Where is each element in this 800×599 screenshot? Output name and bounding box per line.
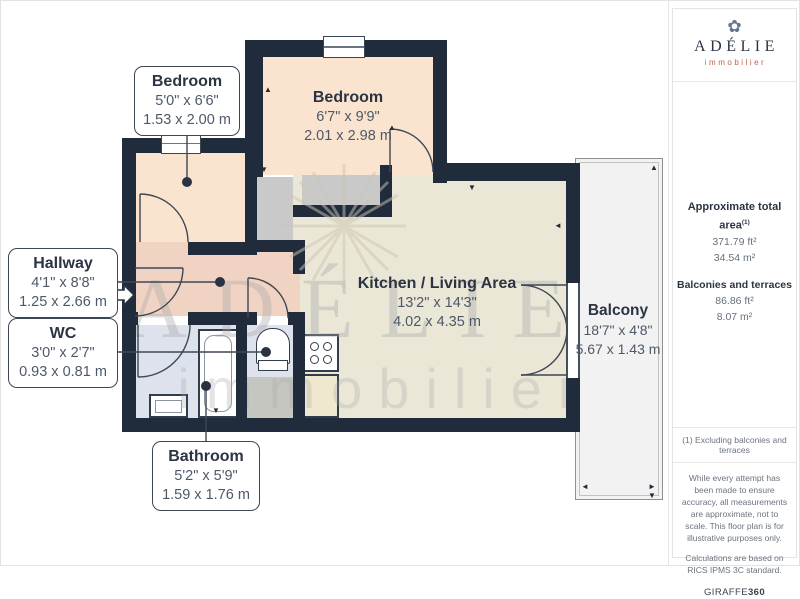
door-arc [140, 194, 188, 242]
room-name: Hallway [11, 254, 115, 274]
room-name: WC [11, 324, 115, 344]
total-area-m: 34.54 m² [673, 250, 796, 266]
giraffe360-logo: GIRAFFE360 [680, 586, 789, 599]
floorplan: ADÉLIE immobilier [0, 0, 668, 566]
balconies-m: 8.07 m² [673, 309, 796, 325]
room-dims-imperial: 5'2" x 5'9" [155, 467, 257, 486]
agency-tagline: immobilier [673, 58, 796, 67]
room-dims-imperial: 13'2" x 14'3" [347, 294, 527, 313]
measure-tick: ► [648, 483, 656, 491]
bedroom-1-label: Bedroom 5'0" x 6'6" 1.53 x 2.00 m [134, 66, 240, 136]
door-arc [135, 268, 183, 316]
brand-name: GIRAFFE [704, 587, 748, 598]
door-arc [138, 325, 190, 377]
disclaimer: While every attempt has been made to ens… [673, 462, 796, 599]
room-dims-metric: 1.53 x 2.00 m [137, 111, 237, 130]
kitchen-living-label: Kitchen / Living Area 13'2" x 14'3" 4.02… [347, 274, 527, 332]
snowflake-icon: ✿ [673, 18, 796, 35]
room-dims-metric: 1.59 x 1.76 m [155, 486, 257, 505]
room-name: Bedroom [137, 72, 237, 92]
room-name: Bathroom [155, 447, 257, 467]
room-dims-imperial: 4'1" x 8'8" [11, 274, 115, 293]
room-dims-imperial: 3'0" x 2'7" [11, 344, 115, 363]
door-arc [521, 285, 567, 331]
wc-label: WC 3'0" x 2'7" 0.93 x 0.81 m [8, 318, 118, 388]
room-dims-metric: 2.01 x 2.98 m [268, 127, 428, 146]
door-arc [248, 278, 288, 318]
brand-suffix: 360 [748, 587, 765, 598]
measure-tick: ▼ [260, 166, 268, 174]
measure-tick: ▼ [648, 492, 656, 500]
room-dims-metric: 4.02 x 4.35 m [347, 313, 527, 332]
bathroom-label: Bathroom 5'2" x 5'9" 1.59 x 1.76 m [152, 441, 260, 511]
total-area-ft: 371.79 ft² [673, 234, 796, 250]
leader-dot [182, 177, 192, 187]
sidebar-panel: ✿ ADÉLIE immobilier Approximate total ar… [672, 8, 797, 558]
area-footnote: (1) Excluding balconies and terraces [673, 427, 796, 462]
total-area-label: Approximate total area [688, 201, 782, 232]
area-summary: Approximate total area(1) 371.79 ft² 34.… [673, 82, 796, 427]
measure-tick: ▼ [212, 407, 220, 415]
agency-name: ADÉLIE [673, 38, 796, 56]
balconies-ft: 86.86 ft² [673, 293, 796, 309]
measure-tick: ▲ [650, 164, 658, 172]
room-dims-imperial: 18'7" x 4'8" [568, 321, 668, 340]
room-dims-imperial: 5'0" x 6'6" [137, 92, 237, 111]
measure-tick: ◄ [581, 483, 589, 491]
agency-logo: ✿ ADÉLIE immobilier [673, 9, 796, 82]
leader-dot [261, 347, 271, 357]
room-dims-metric: 0.93 x 0.81 m [11, 363, 115, 382]
total-area-heading: Approximate total area(1) [673, 200, 796, 234]
room-dims-metric: 1.25 x 2.66 m [11, 293, 115, 312]
disclaimer-text-2: Calculations are based on RICS IPMS 3C s… [680, 552, 789, 576]
room-dims-imperial: 6'7" x 9'9" [268, 108, 428, 127]
balcony-label: Balcony 18'7" x 4'8" 5.67 x 1.43 m [568, 301, 668, 359]
bedroom-2-label: Bedroom 6'7" x 9'9" 2.01 x 2.98 m [268, 88, 428, 146]
sidebar-divider [668, 0, 669, 566]
room-name: Kitchen / Living Area [347, 274, 527, 294]
door-arc [521, 329, 567, 375]
footnote-ref: (1) [742, 219, 750, 226]
floorplan-page: { "plan": { "rooms": { "bedroom1": { "na… [0, 0, 800, 566]
measure-tick: ◄ [554, 222, 562, 230]
leader-dot [201, 381, 211, 391]
measure-tick: ◄ [126, 377, 134, 385]
leader-dot [215, 277, 225, 287]
measure-tick: ▼ [468, 184, 476, 192]
room-name: Balcony [568, 301, 668, 321]
hallway-label: Hallway 4'1" x 8'8" 1.25 x 2.66 m [8, 248, 118, 318]
balconies-heading: Balconies and terraces [673, 278, 796, 293]
room-name: Bedroom [268, 88, 428, 108]
disclaimer-text-1: While every attempt has been made to ens… [680, 472, 789, 544]
room-dims-metric: 5.67 x 1.43 m [568, 340, 668, 359]
